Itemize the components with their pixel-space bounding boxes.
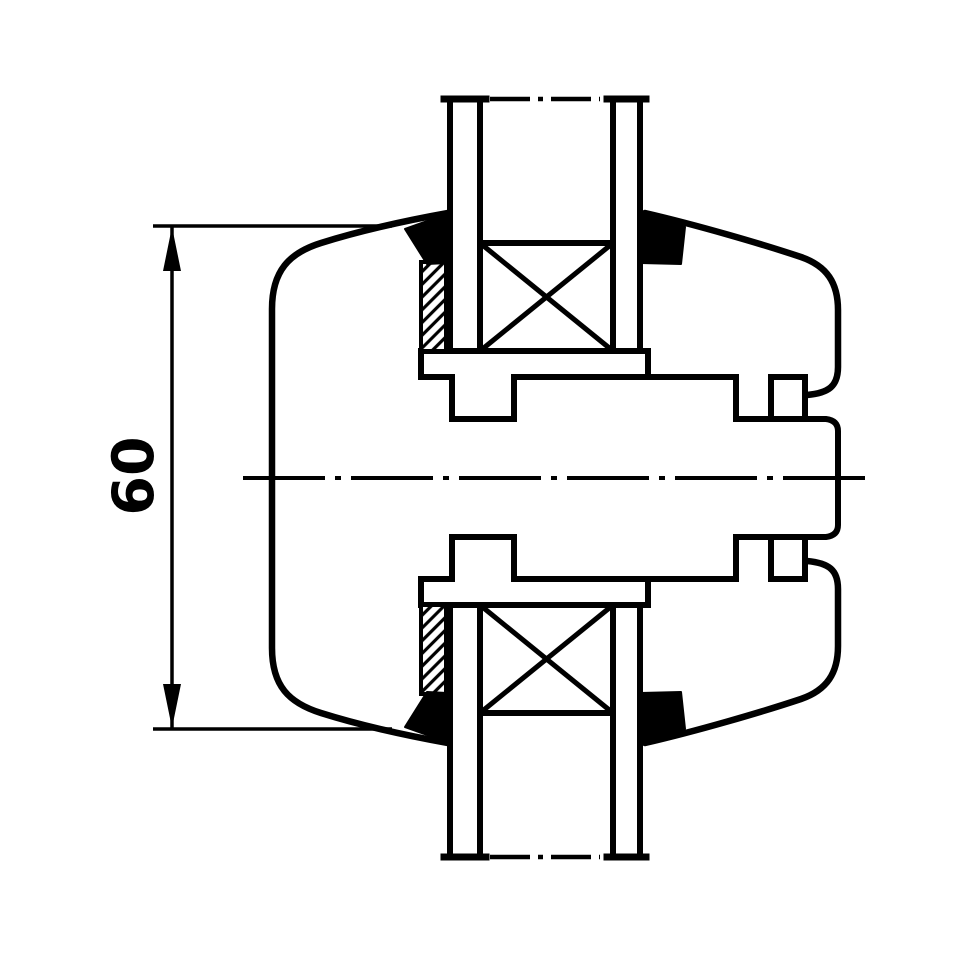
- engineering-drawing: 60: [0, 0, 960, 960]
- technical-drawing-page: 60: [0, 0, 960, 960]
- seal-carrier-hatch-top: [421, 262, 446, 351]
- dimension-text: 60: [101, 436, 167, 515]
- seal-carrier-hatch-bottom: [421, 605, 446, 694]
